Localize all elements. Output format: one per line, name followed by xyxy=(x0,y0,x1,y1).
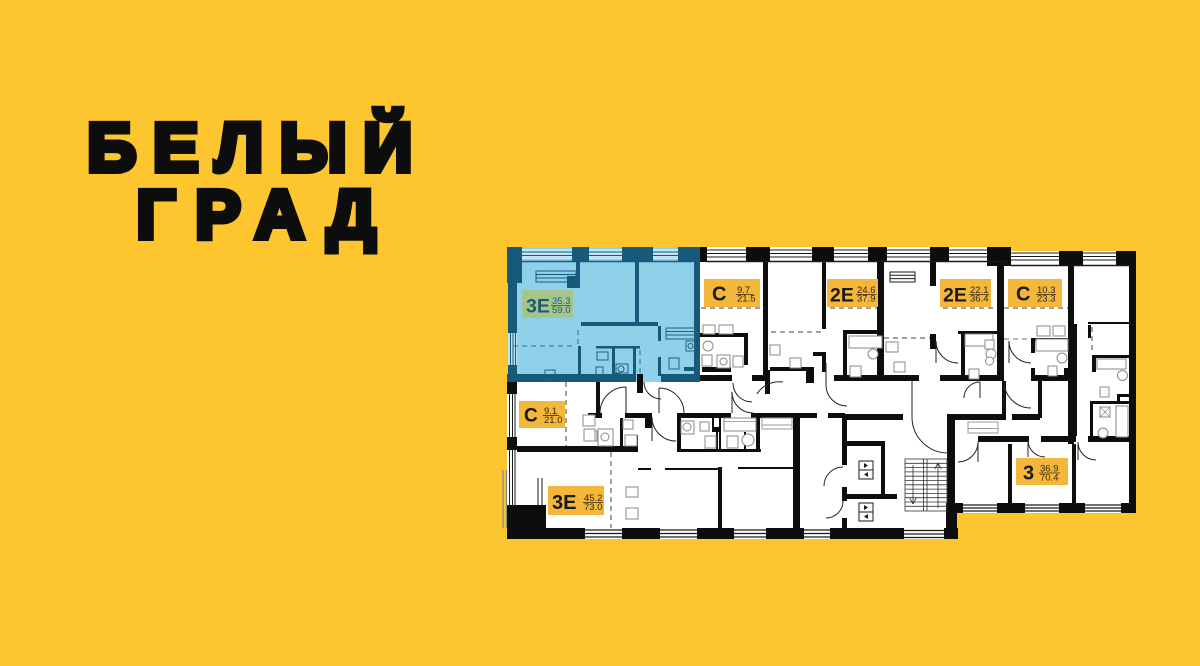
svg-text:3Е: 3Е xyxy=(552,492,576,514)
svg-text:БЕЛЫЙ: БЕЛЫЙ xyxy=(87,108,429,186)
svg-text:36.4: 36.4 xyxy=(970,294,989,305)
svg-text:21.0: 21.0 xyxy=(544,415,563,426)
svg-text:С: С xyxy=(712,284,726,306)
svg-text:70.4: 70.4 xyxy=(1040,473,1059,484)
svg-text:С: С xyxy=(1016,284,1030,306)
svg-text:23.3: 23.3 xyxy=(1037,294,1056,305)
svg-text:73.0: 73.0 xyxy=(584,502,603,513)
svg-text:37.9: 37.9 xyxy=(857,294,876,305)
svg-text:С: С xyxy=(524,406,538,427)
svg-text:59.0: 59.0 xyxy=(552,305,571,316)
svg-text:2Е: 2Е xyxy=(943,285,967,307)
svg-text:21.5: 21.5 xyxy=(737,294,756,305)
svg-text:3Е: 3Е xyxy=(526,296,550,318)
svg-text:ГРАД: ГРАД xyxy=(136,176,395,253)
svg-text:3: 3 xyxy=(1023,463,1034,485)
svg-text:2Е: 2Е xyxy=(830,285,854,307)
